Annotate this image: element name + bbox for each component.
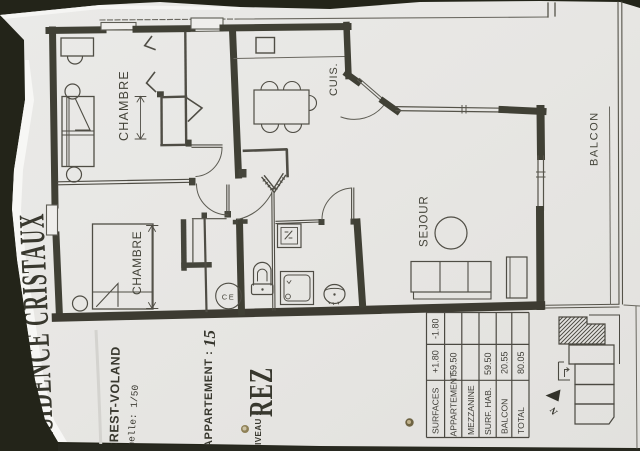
svg-text:REZ: REZ	[243, 367, 280, 417]
svg-text:59.50: 59.50	[483, 352, 493, 375]
svg-text:CE: CE	[222, 293, 235, 302]
svg-text:BALCON: BALCON	[589, 111, 601, 166]
svg-text:-1.80: -1.80	[431, 318, 441, 339]
svg-text:CUIS.: CUIS.	[328, 63, 340, 96]
svg-text:APPARTEMENT: APPARTEMENT	[449, 372, 459, 436]
svg-text:CHAMBRE: CHAMBRE	[117, 70, 131, 141]
svg-text:20.55: 20.55	[500, 351, 510, 374]
svg-text:CREST-VOLAND: CREST-VOLAND	[107, 346, 123, 451]
svg-text:APPARTEMENT :: APPARTEMENT :	[203, 351, 215, 448]
svg-text:TOTAL: TOTAL	[516, 407, 526, 434]
svg-text:SURF. HAB.: SURF. HAB.	[483, 388, 493, 435]
svg-text:+1.80: +1.80	[431, 350, 441, 373]
svg-text:59.50: 59.50	[449, 352, 459, 375]
svg-text:BALCON: BALCON	[500, 399, 510, 434]
svg-text:80.05: 80.05	[516, 351, 526, 374]
svg-text:NIVEAU :: NIVEAU :	[254, 413, 263, 451]
svg-text:CHAMBRE: CHAMBRE	[130, 231, 144, 295]
svg-text:15: 15	[200, 330, 219, 348]
svg-text:SURFACES: SURFACES	[431, 387, 441, 434]
svg-text:MEZZANINE: MEZZANINE	[466, 385, 476, 435]
svg-text:SEJOUR: SEJOUR	[419, 196, 431, 247]
